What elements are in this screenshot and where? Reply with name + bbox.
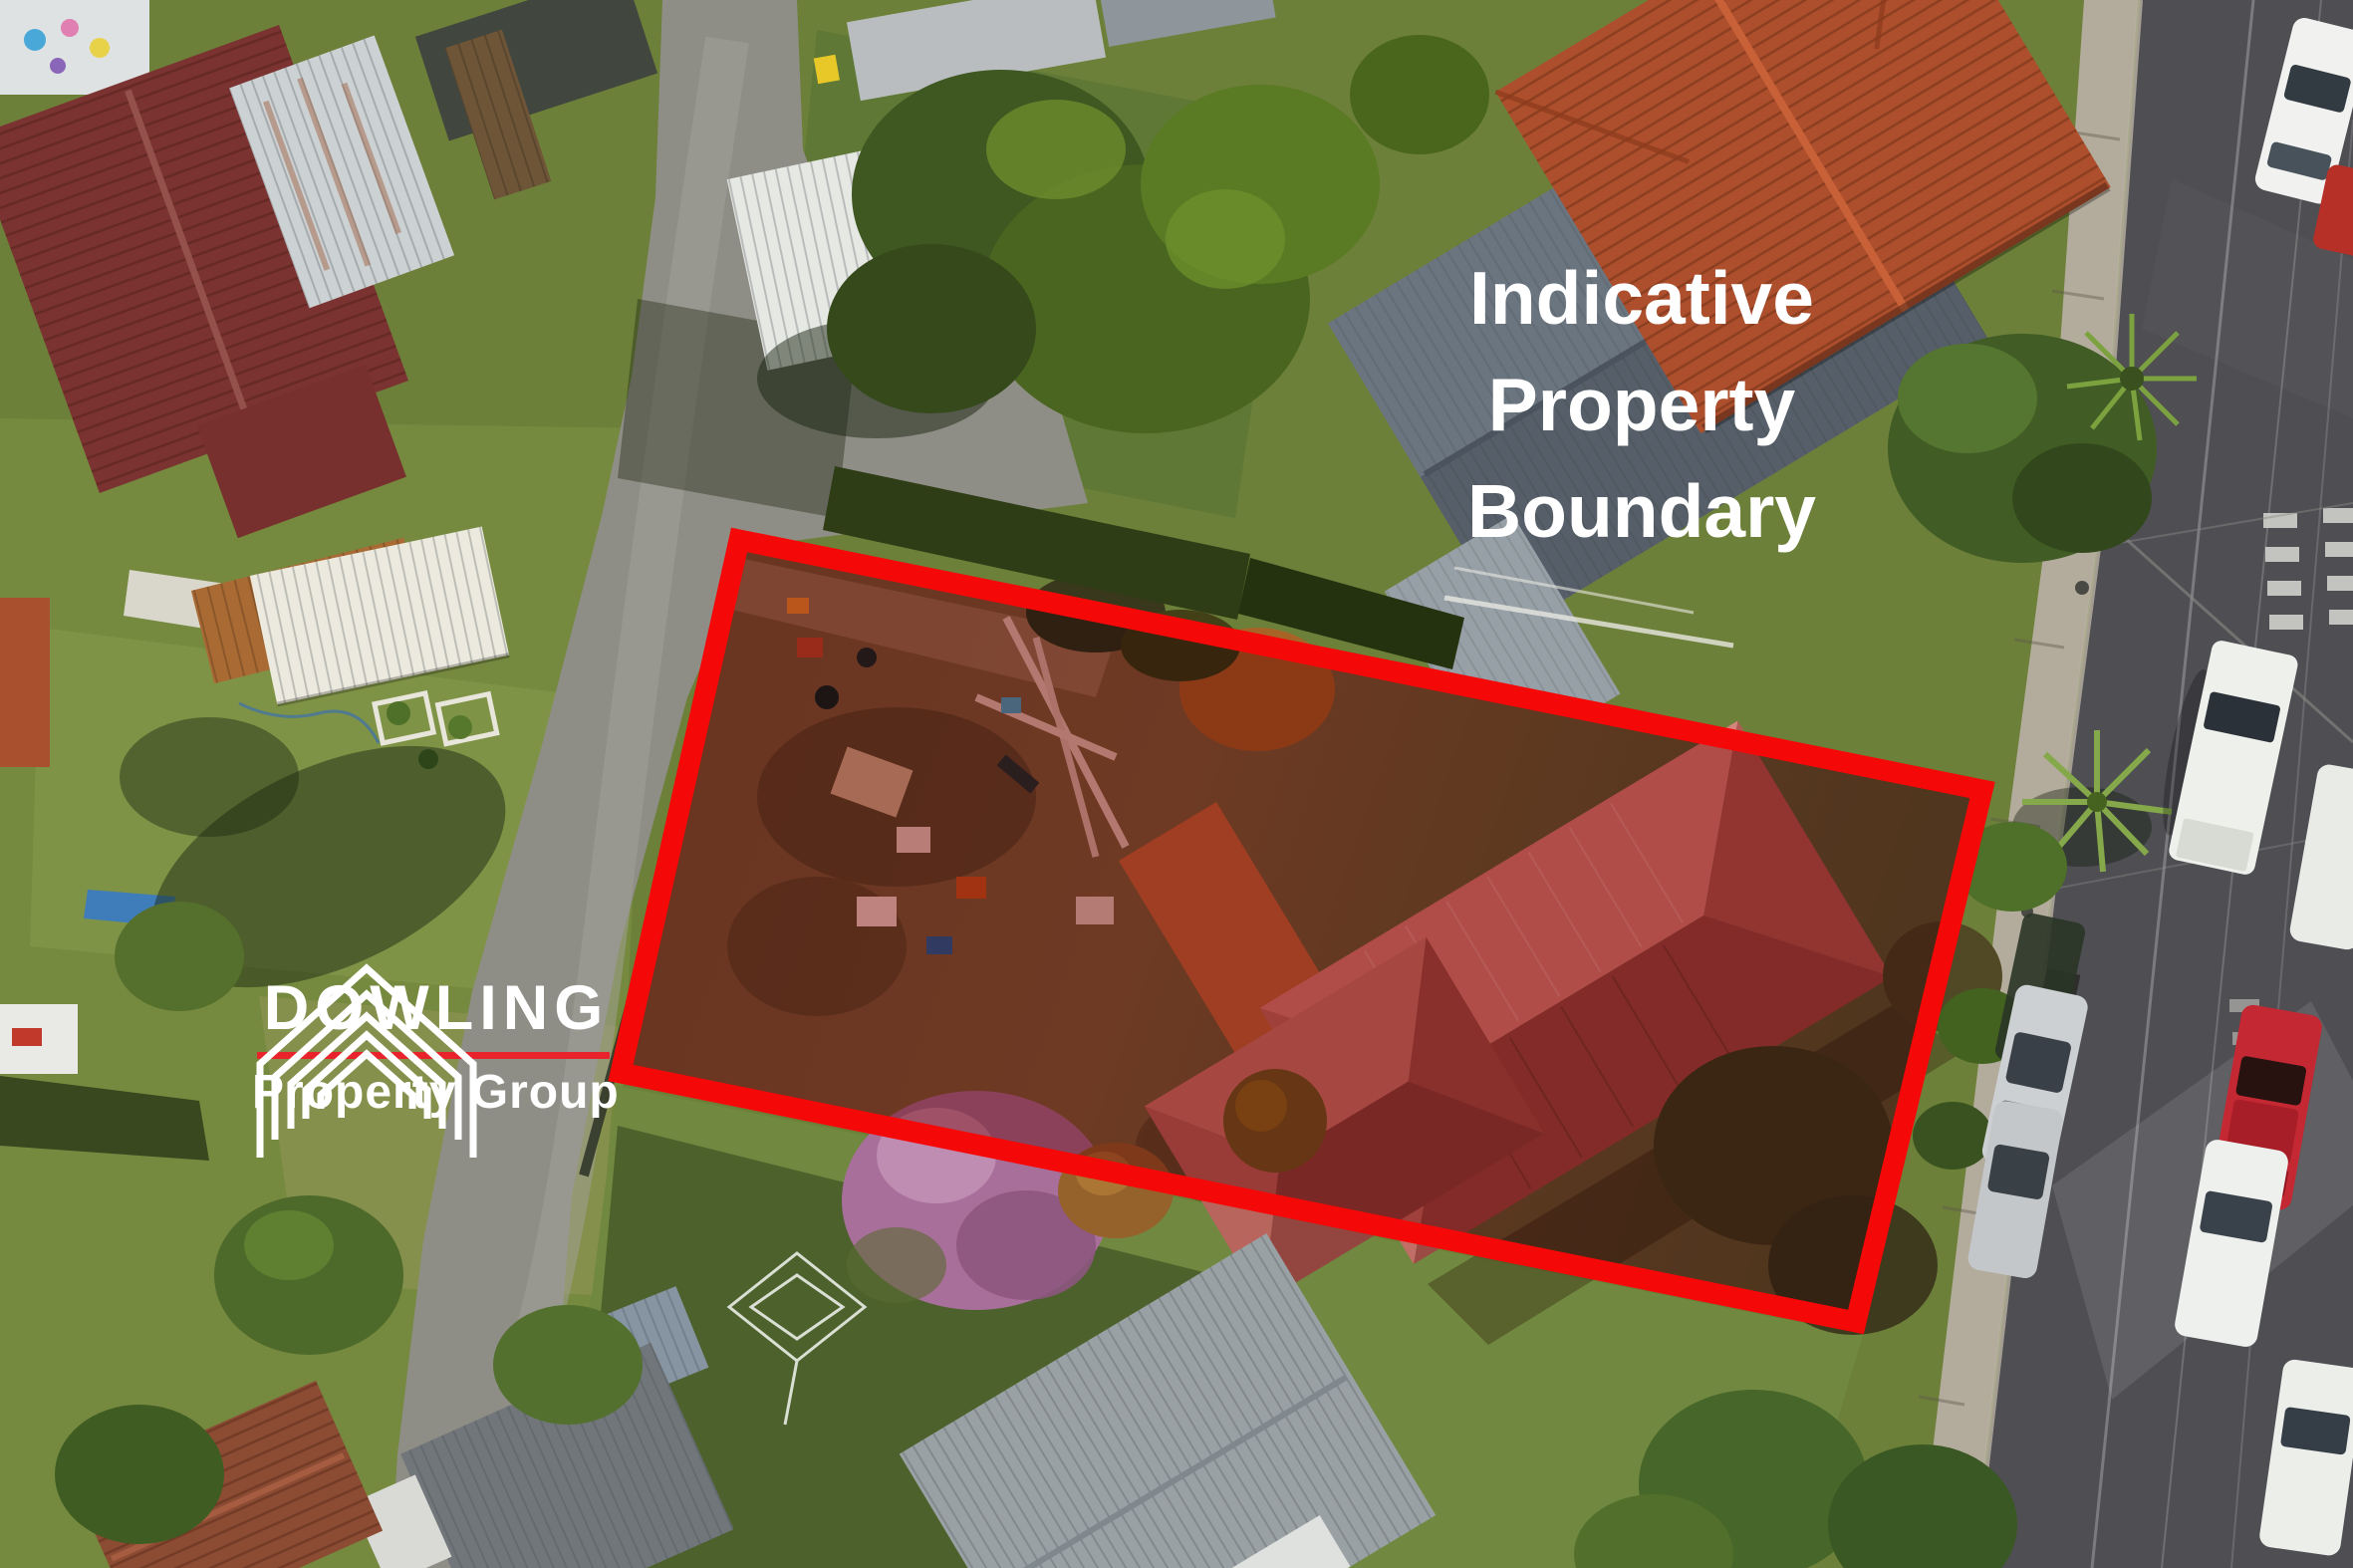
boundary-label: Indicative Property Boundary bbox=[1278, 245, 2005, 565]
power-pole bbox=[2075, 581, 2089, 595]
boundary-label-line2: Property bbox=[1278, 352, 2005, 458]
boundary-label-line3: Boundary bbox=[1278, 458, 2005, 565]
aerial-photo bbox=[0, 0, 2353, 1568]
agency-watermark: DOWLING Property Group bbox=[252, 948, 615, 1118]
red-tile-fragment bbox=[0, 598, 50, 767]
aerial-photo-scene: Indicative Property Boundary DOWLING Pro… bbox=[0, 0, 2353, 1568]
yellow-bin bbox=[814, 55, 840, 84]
boundary-label-line1: Indicative bbox=[1278, 245, 2005, 352]
small-white-shed bbox=[0, 1004, 78, 1074]
dowling-house-logo-icon bbox=[252, 958, 481, 1158]
